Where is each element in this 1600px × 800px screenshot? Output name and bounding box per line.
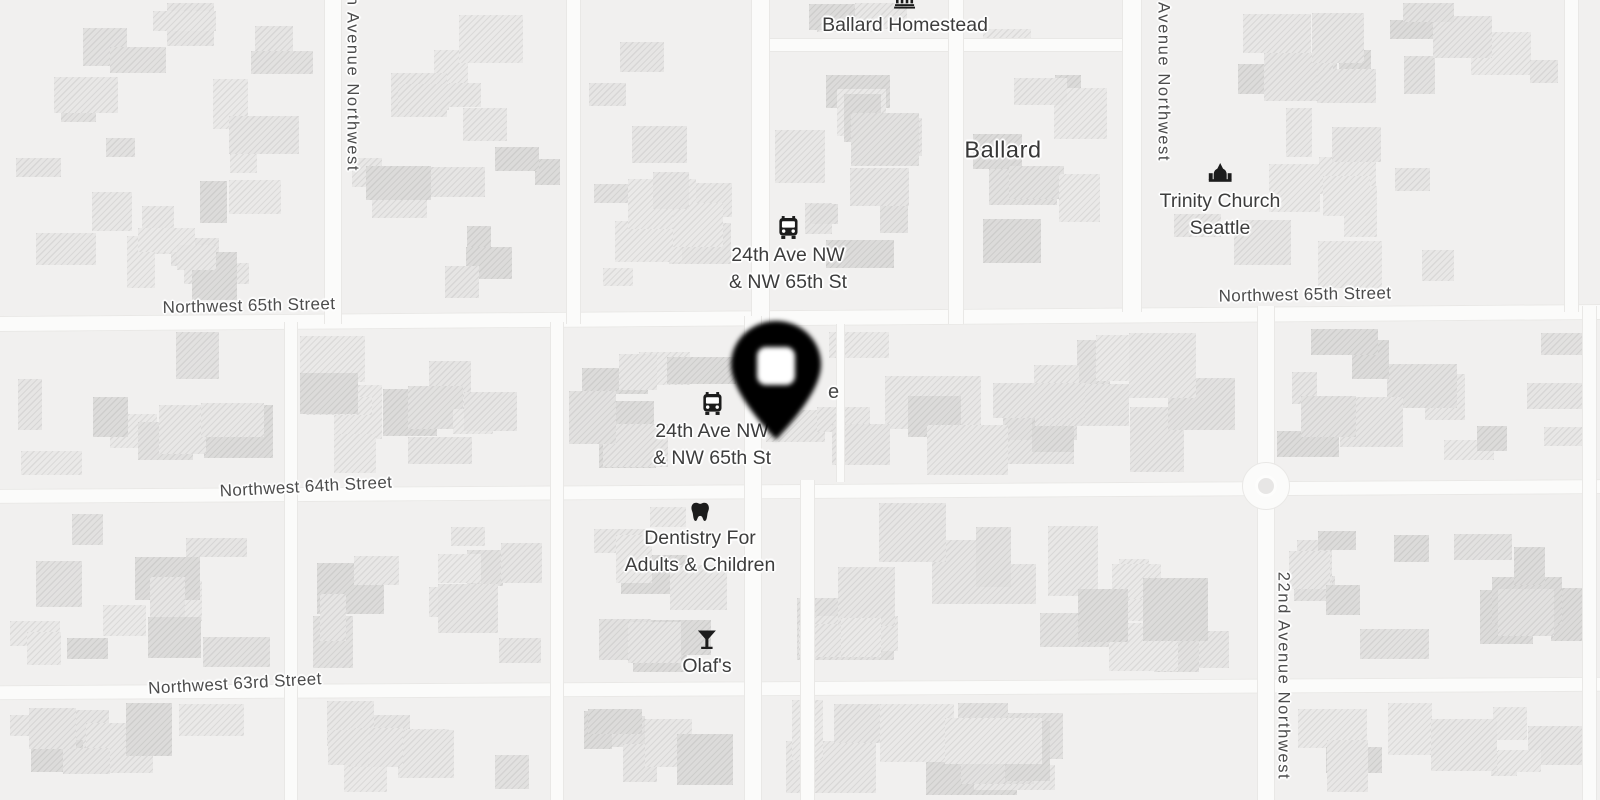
street-label-avenue-northwest-left: h Avenue Northwest bbox=[343, 0, 362, 172]
building-footprint bbox=[1289, 551, 1330, 589]
building-footprint bbox=[1009, 166, 1064, 199]
building-footprint bbox=[16, 158, 61, 177]
building-footprint bbox=[851, 113, 919, 166]
building-footprint bbox=[632, 126, 687, 163]
bus-icon bbox=[729, 216, 847, 239]
road-segment bbox=[284, 322, 298, 800]
building-footprint bbox=[328, 730, 369, 765]
building-footprint bbox=[1388, 703, 1432, 755]
building-footprint bbox=[36, 233, 96, 265]
building-footprint bbox=[67, 638, 108, 659]
building-footprint bbox=[1477, 426, 1507, 451]
building-footprint bbox=[1078, 589, 1128, 642]
building-footprint bbox=[1514, 547, 1545, 585]
building-footprint bbox=[334, 434, 376, 473]
building-footprint bbox=[229, 116, 299, 154]
obscured-label-fragment: e bbox=[828, 381, 839, 404]
building-footprint bbox=[1327, 740, 1368, 792]
poi-ballard-homestead[interactable]: Ballard Homestead bbox=[822, 0, 988, 39]
poi-olafs[interactable]: Olaf's bbox=[682, 630, 731, 680]
building-footprint bbox=[29, 708, 76, 749]
bank-icon bbox=[822, 0, 988, 9]
location-pin-marker[interactable] bbox=[727, 318, 825, 449]
building-footprint bbox=[850, 168, 909, 206]
building-footprint bbox=[501, 543, 542, 583]
neighborhood-label-ballard[interactable]: Ballard bbox=[964, 137, 1041, 164]
poi-label-line1: Trinity Church bbox=[1160, 190, 1281, 212]
building-footprint bbox=[200, 181, 227, 223]
building-footprint bbox=[588, 709, 642, 734]
building-footprint bbox=[667, 357, 736, 384]
building-footprint bbox=[398, 730, 454, 778]
building-footprint bbox=[653, 172, 689, 209]
building-footprint bbox=[879, 503, 946, 562]
road-segment bbox=[1564, 0, 1579, 312]
building-footprint bbox=[1493, 707, 1527, 740]
building-footprint bbox=[150, 577, 185, 617]
roundabout bbox=[1242, 462, 1290, 510]
building-footprint bbox=[589, 83, 626, 106]
building-footprint bbox=[366, 166, 431, 200]
poi-bus-stop-north[interactable]: 24th Ave NW & NW 65th St bbox=[729, 216, 847, 296]
building-footprint bbox=[464, 392, 517, 431]
building-footprint bbox=[976, 527, 1011, 587]
building-footprint bbox=[1323, 176, 1370, 216]
poi-label-line1: 24th Ave NW bbox=[731, 244, 844, 266]
road-segment bbox=[566, 0, 581, 324]
street-label-nw-65th-west: Northwest 65th Street bbox=[162, 294, 335, 318]
building-footprint bbox=[203, 637, 270, 667]
building-footprint bbox=[110, 47, 166, 73]
building-footprint bbox=[983, 219, 1041, 263]
building-footprint bbox=[1360, 629, 1429, 659]
building-footprint bbox=[93, 397, 128, 437]
poi-label-line2: Adults & Children bbox=[625, 554, 776, 576]
building-footprint bbox=[459, 15, 523, 63]
building-footprint bbox=[445, 266, 479, 298]
building-footprint bbox=[63, 748, 110, 774]
building-footprint bbox=[993, 383, 1085, 418]
building-footprint bbox=[186, 538, 247, 557]
poi-dentistry[interactable]: Dentistry For Adults & Children bbox=[625, 502, 776, 579]
building-footprint bbox=[72, 514, 103, 545]
building-footprint bbox=[1403, 3, 1454, 22]
building-footprint bbox=[1454, 534, 1512, 560]
building-footprint bbox=[159, 405, 206, 454]
road-segment bbox=[550, 322, 564, 800]
poi-label-line2: Seattle bbox=[1190, 217, 1251, 239]
poi-label-line2: & NW 65th St bbox=[653, 447, 771, 469]
building-footprint bbox=[27, 632, 61, 665]
road-segment bbox=[1257, 306, 1275, 800]
building-footprint bbox=[92, 192, 132, 231]
building-footprint bbox=[1422, 250, 1454, 281]
building-footprint bbox=[106, 138, 135, 157]
building-footprint bbox=[1317, 69, 1376, 103]
poi-label-line2: & NW 65th St bbox=[729, 271, 847, 293]
building-footprint bbox=[1286, 108, 1312, 157]
building-footprint bbox=[451, 527, 485, 546]
building-footprint bbox=[677, 734, 733, 785]
tooth-icon bbox=[625, 502, 776, 522]
building-footprint bbox=[251, 51, 313, 74]
building-footprint bbox=[1318, 531, 1356, 550]
building-footprint bbox=[495, 755, 529, 789]
map-canvas[interactable]: Northwest 65th Street Northwest 65th Str… bbox=[0, 0, 1600, 800]
building-footprint bbox=[1318, 241, 1382, 288]
building-footprint bbox=[1395, 168, 1430, 191]
building-footprint bbox=[1530, 60, 1558, 83]
roundabout-island bbox=[1255, 475, 1277, 497]
building-footprint bbox=[495, 147, 539, 171]
building-footprint bbox=[36, 561, 82, 607]
building-footprint bbox=[619, 354, 657, 390]
building-footprint bbox=[1498, 589, 1554, 636]
building-footprint bbox=[229, 180, 281, 214]
church-icon bbox=[1160, 163, 1281, 185]
building-footprint bbox=[620, 42, 664, 72]
building-footprint bbox=[103, 605, 146, 636]
building-footprint bbox=[177, 245, 216, 270]
building-footprint bbox=[1541, 333, 1582, 355]
building-footprint bbox=[1238, 64, 1264, 94]
building-footprint bbox=[1243, 14, 1311, 53]
building-footprint bbox=[628, 622, 681, 663]
building-footprint bbox=[179, 704, 244, 736]
building-footprint bbox=[449, 83, 481, 107]
building-footprint bbox=[1527, 383, 1590, 409]
building-footprint bbox=[841, 618, 881, 657]
building-footprint bbox=[438, 554, 481, 583]
building-footprint bbox=[1014, 78, 1067, 105]
building-footprint bbox=[775, 130, 825, 183]
building-footprint bbox=[1311, 329, 1378, 355]
building-footprint bbox=[1326, 585, 1360, 615]
building-footprint bbox=[1301, 396, 1356, 437]
building-footprint bbox=[1404, 56, 1435, 94]
building-footprint bbox=[1312, 13, 1364, 63]
road-segment bbox=[1122, 0, 1142, 312]
building-footprint bbox=[1390, 20, 1437, 39]
building-footprint bbox=[1129, 333, 1196, 398]
street-label-22nd-avenue-northwest: 22nd Avenue Northwest bbox=[1274, 572, 1293, 781]
road-segment bbox=[800, 480, 815, 800]
building-footprint bbox=[18, 379, 42, 430]
poi-label: Olaf's bbox=[682, 655, 731, 677]
building-footprint bbox=[1332, 127, 1381, 162]
street-label-nw-65th-east: Northwest 65th Street bbox=[1218, 283, 1391, 306]
building-footprint bbox=[438, 584, 498, 633]
road-segment bbox=[758, 38, 1130, 52]
road-segment bbox=[948, 0, 964, 324]
poi-trinity-church[interactable]: Trinity Church Seattle bbox=[1160, 163, 1281, 242]
building-footprint bbox=[54, 77, 118, 113]
building-footprint bbox=[1143, 578, 1208, 641]
poi-label: Ballard Homestead bbox=[822, 14, 988, 36]
road-segment bbox=[324, 0, 342, 324]
building-footprint bbox=[148, 617, 201, 658]
building-footprint bbox=[408, 437, 472, 464]
building-footprint bbox=[201, 403, 264, 437]
building-footprint bbox=[176, 332, 219, 379]
building-footprint bbox=[1431, 719, 1497, 771]
building-footprint bbox=[1544, 427, 1586, 446]
building-footprint bbox=[880, 704, 954, 762]
building-footprint bbox=[673, 203, 723, 247]
road-segment bbox=[1582, 306, 1597, 800]
building-footprint bbox=[1433, 16, 1492, 58]
poi-label-line1: Dentistry For bbox=[644, 527, 756, 549]
building-footprint bbox=[945, 718, 1042, 764]
building-footprint bbox=[499, 638, 541, 663]
building-footprint bbox=[927, 425, 1008, 475]
building-footprint bbox=[1048, 526, 1098, 596]
building-footprint bbox=[603, 268, 633, 286]
building-footprint bbox=[1059, 174, 1100, 222]
building-footprint bbox=[569, 391, 616, 444]
building-footprint bbox=[126, 703, 172, 756]
building-footprint bbox=[354, 556, 399, 585]
building-footprint bbox=[398, 84, 449, 110]
cocktail-icon bbox=[682, 630, 731, 650]
building-footprint bbox=[300, 373, 358, 414]
building-footprint bbox=[21, 451, 82, 475]
building-footprint bbox=[1498, 750, 1541, 772]
building-footprint bbox=[463, 108, 507, 141]
building-footprint bbox=[320, 594, 346, 641]
street-label-avenue-northwest-right: Avenue Northwest bbox=[1154, 2, 1173, 162]
building-footprint bbox=[153, 11, 216, 31]
building-footprint bbox=[1394, 535, 1429, 562]
